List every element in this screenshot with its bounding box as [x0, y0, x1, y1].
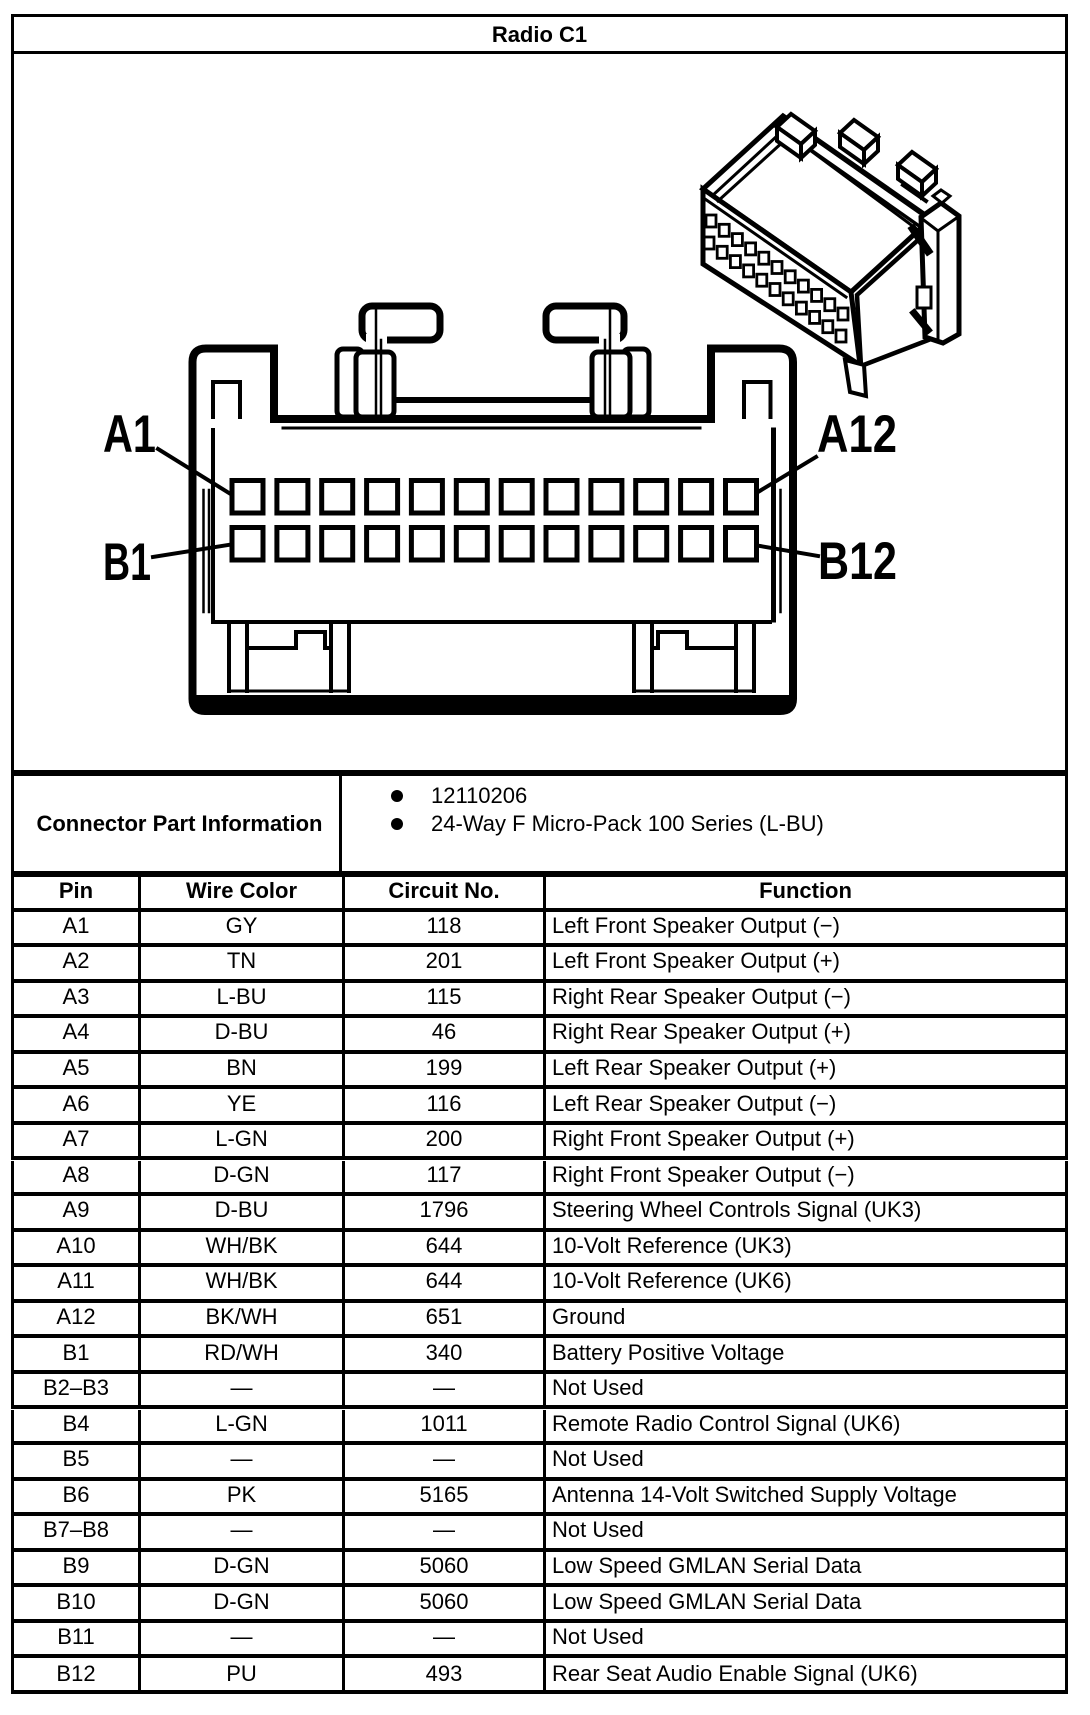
svg-text:A12: A12	[817, 405, 897, 464]
svg-text:B1: B1	[103, 533, 151, 592]
svg-text:A1: A1	[103, 405, 156, 464]
svg-text:B12: B12	[818, 532, 897, 591]
